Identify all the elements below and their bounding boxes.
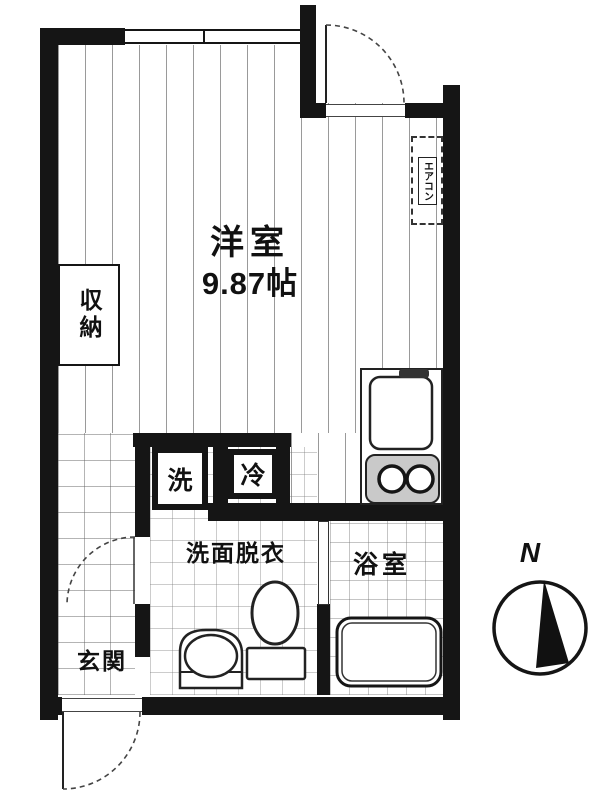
washbasin-bowl-icon: [185, 635, 237, 677]
room-area-label: 9.87帖: [170, 268, 330, 301]
faucet-icon: [399, 369, 429, 378]
washroom-label: 洗面脱衣: [155, 541, 317, 565]
bathtub-icon: [337, 618, 441, 686]
bathroom-label: 浴室: [336, 552, 428, 578]
washroom-door-arc-icon: [67, 537, 135, 604]
compass-north-label: N: [505, 538, 555, 567]
fixtures-layer: [0, 0, 600, 800]
balcony-door-arc-icon: [326, 25, 404, 103]
burner-left-icon: [379, 466, 405, 492]
toilet-bowl-icon: [252, 582, 298, 644]
floorplan: 収納 洗 冷 エアコン: [0, 0, 600, 800]
sink-icon: [370, 377, 432, 449]
burner-right-icon: [407, 466, 433, 492]
entrance-label: 玄関: [66, 649, 138, 673]
room-label: 洋室: [180, 226, 320, 262]
entry-door-arc-icon: [63, 712, 140, 789]
toilet-tank-icon: [247, 648, 305, 679]
